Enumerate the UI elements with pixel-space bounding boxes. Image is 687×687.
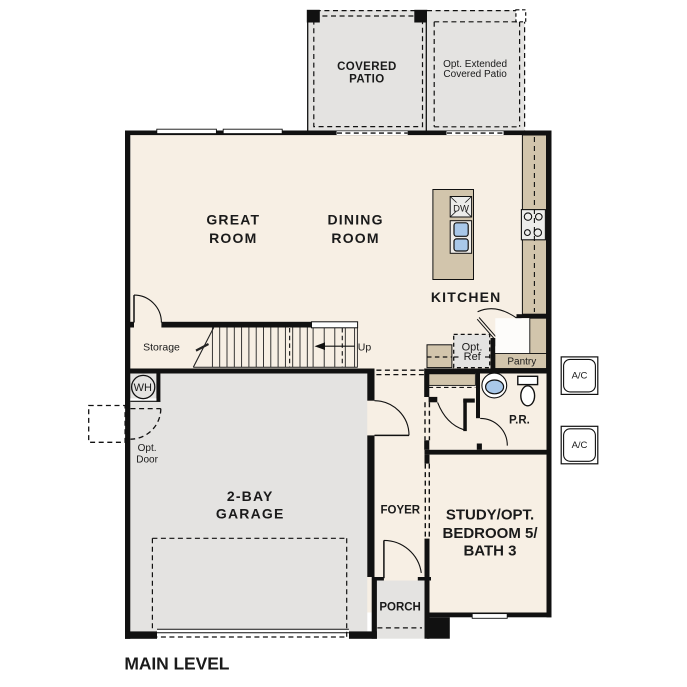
svg-text:Door: Door [136,454,158,465]
svg-text:A/C: A/C [572,371,588,382]
svg-text:PATIO: PATIO [349,74,384,86]
svg-text:Pantry: Pantry [507,356,536,367]
svg-text:Storage: Storage [143,341,180,353]
svg-text:Ref: Ref [464,351,482,363]
svg-text:GREAT: GREAT [206,212,260,228]
svg-text:ROOM: ROOM [209,230,257,246]
svg-text:STUDY/OPT.: STUDY/OPT. [446,507,534,524]
svg-text:DINING: DINING [327,212,383,228]
svg-text:KITCHEN: KITCHEN [431,289,502,305]
svg-text:ROOM: ROOM [331,230,379,246]
svg-text:2-BAY: 2-BAY [227,488,274,504]
svg-text:Covered Patio: Covered Patio [443,69,507,80]
svg-text:WH: WH [134,382,152,394]
svg-text:BEDROOM 5/: BEDROOM 5/ [442,525,538,542]
svg-text:Opt.: Opt. [138,443,157,454]
svg-text:MAIN LEVEL: MAIN LEVEL [124,654,229,674]
svg-text:GARAGE: GARAGE [216,506,285,522]
svg-text:PORCH: PORCH [379,602,421,614]
svg-text:BATH 3: BATH 3 [463,543,516,560]
svg-text:FOYER: FOYER [380,505,420,517]
svg-text:DW: DW [453,203,469,214]
svg-text:A/C: A/C [572,440,588,451]
svg-text:P.R.: P.R. [509,414,530,426]
svg-text:COVERED: COVERED [337,61,397,73]
svg-text:Up: Up [358,341,372,353]
